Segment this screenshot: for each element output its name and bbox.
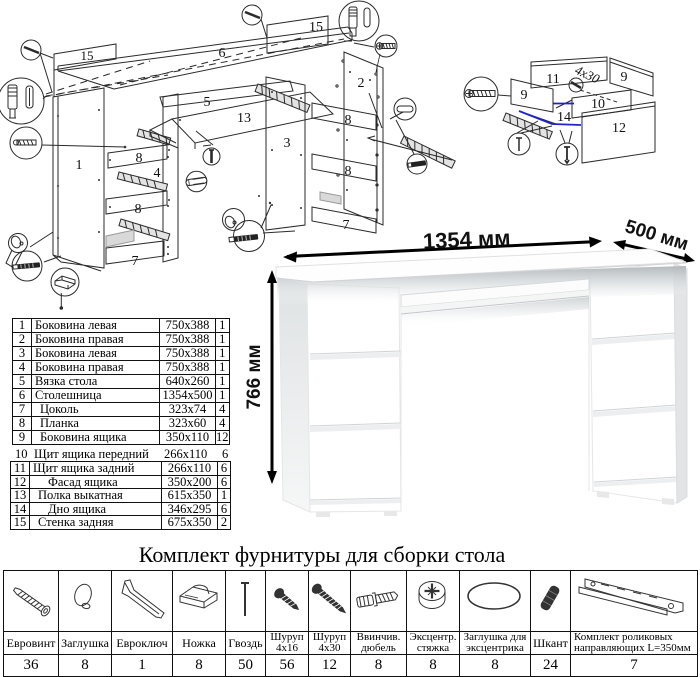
svg-text:3: 3 [284, 136, 291, 151]
svg-text:9: 9 [621, 70, 628, 85]
svg-text:8: 8 [345, 164, 352, 179]
svg-text:15: 15 [309, 20, 323, 35]
svg-text:8: 8 [345, 113, 352, 128]
svg-text:1354 мм: 1354 мм [422, 225, 511, 254]
svg-text:13: 13 [237, 111, 251, 126]
svg-text:4: 4 [154, 166, 161, 181]
svg-text:8: 8 [136, 151, 143, 166]
svg-text:11: 11 [546, 72, 559, 87]
svg-text:766 мм: 766 мм [244, 344, 265, 409]
svg-text:7: 7 [132, 254, 139, 269]
svg-text:9: 9 [521, 88, 528, 103]
svg-text:8: 8 [135, 202, 142, 217]
svg-text:14: 14 [557, 110, 571, 125]
svg-text:2: 2 [358, 76, 365, 91]
svg-text:7: 7 [343, 218, 350, 233]
svg-text:6: 6 [219, 46, 226, 61]
svg-text:5: 5 [204, 95, 211, 110]
svg-text:15: 15 [81, 48, 94, 63]
svg-text:12: 12 [612, 121, 626, 136]
svg-text:1: 1 [76, 158, 83, 173]
